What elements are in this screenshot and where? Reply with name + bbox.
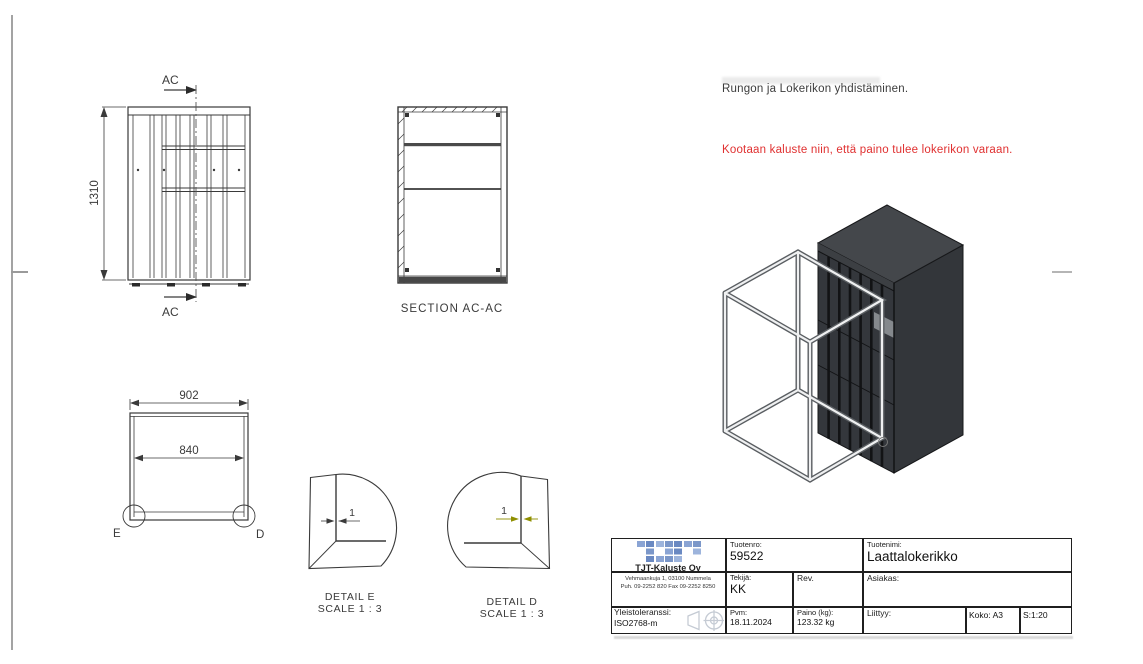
front-dots [137,169,240,171]
company-phone: Puh. 09-2252 820 Fax 09-2252 8250 [611,584,725,590]
front-view: AC AC 1310 [89,73,250,319]
detail-e-scale: SCALE 1 : 3 [318,603,382,615]
iso-view [725,205,963,480]
section-arrow-top [164,86,197,94]
front-feet [132,283,246,287]
related-label: Liittyy: [867,608,891,618]
weight-label: Paino (kg): [797,608,833,617]
author-value: KK [730,582,746,596]
detail-d-scale: SCALE 1 : 3 [480,608,544,620]
detail-e-view: 1 DETAIL E SCALE 1 : 3 [309,474,397,615]
section-hatch-left [398,118,404,268]
projection-method-icon [686,609,724,632]
tb-rule-v1 [725,538,727,634]
detail-d-title: DETAIL D [487,596,538,608]
detail-e-title: DETAIL E [325,591,375,603]
tb-rule-v5 [1019,606,1021,634]
tolerance-value: ISO2768-m [614,618,657,628]
detail-e-mark: E [113,528,121,540]
tolerance-label: Yleistoleranssi: [614,607,671,617]
product-no-value: 59522 [730,549,763,563]
customer-label: Asiakas: [867,573,899,583]
tb-rule-v2 [792,571,794,634]
detail-d-dim-label: 1 [501,505,507,517]
front-rails [162,146,245,192]
section-view: SECTION AC-AC [398,107,507,315]
drawing-sheet: AC AC 1310 [0,0,1143,664]
top-outer-dimension-label: 902 [179,390,198,402]
title-block-shadow [614,636,1073,639]
tb-rule-v4 [965,606,967,634]
tb-rule-v3 [862,538,864,634]
detail-d-mark: D [256,529,264,541]
top-view: 902 840 E D [113,390,264,541]
section-mark-top-label: AC [162,73,179,87]
detail-d-dimension [496,516,538,522]
section-arrow-bottom [164,293,197,301]
assembly-note: Rungon ja Lokerikon yhdistäminen. [722,83,908,95]
weight-value: 123.32 kg [797,617,834,627]
front-slats [150,115,227,278]
company-name: TJT-Kaluste Oy [611,563,725,573]
detail-e-dim-label: 1 [349,507,355,519]
detail-d-view: 1 DETAIL D SCALE 1 : 3 [448,472,550,620]
height-dimension-label: 1310 [89,180,101,206]
author-label: Tekijä: [730,573,751,582]
rev-label: Rev. [797,573,814,583]
section-view-label: SECTION AC-AC [401,303,503,315]
company-address: Vehmaankuja 1, 03100 Nummela [611,576,725,582]
section-corner-fittings [405,113,500,272]
product-name-value: Laattalokerikko [867,549,958,564]
scale-value: S:1:20 [1023,610,1048,620]
section-hatch-top [402,107,497,112]
tb-rule-h2 [611,606,1072,608]
detail-e-dimension [321,518,360,524]
date-value: 18.11.2024 [730,617,772,627]
tjt-logo [637,541,703,563]
top-inner-dimension-label: 840 [179,445,198,457]
product-name-label: Tuotenimi: [867,540,902,549]
height-dimension [101,107,127,280]
date-label: Pvm: [730,608,747,617]
warning-note: Kootaan kaluste niin, että paino tulee l… [722,144,1013,156]
size-value: Koko: A3 [969,610,1003,620]
product-no-label: Tuotenro: [730,540,762,549]
iso-locker [818,205,963,473]
section-mark-bottom-label: AC [162,305,179,319]
